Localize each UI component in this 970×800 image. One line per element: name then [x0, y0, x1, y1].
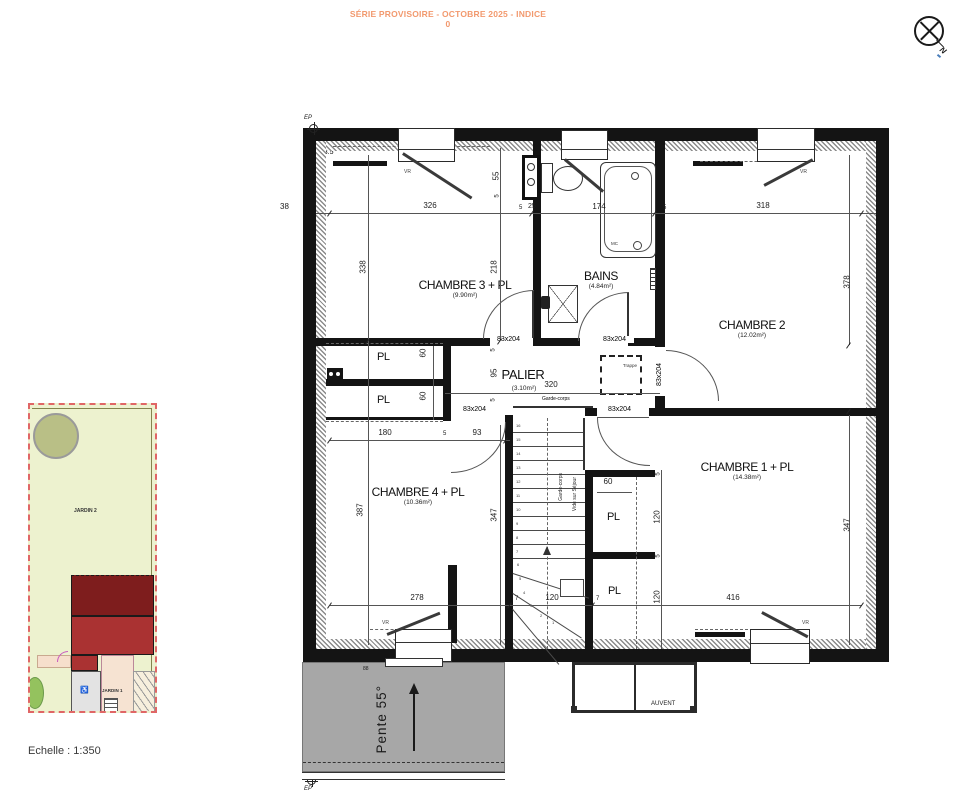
- electrical-box-icon: [327, 368, 343, 381]
- towel-radiator-icon: [650, 268, 656, 290]
- door-size-ch2: 83x204: [656, 363, 663, 386]
- dim-320: 320: [541, 381, 561, 389]
- door-arc-ch1: [597, 418, 650, 466]
- dimline-ch1-60: [597, 492, 632, 493]
- dim-55: 55: [492, 172, 500, 181]
- dim-7b: 7: [596, 596, 599, 602]
- dim-25: 25: [528, 203, 536, 210]
- dim-7a: 7: [515, 596, 518, 602]
- door-arc-bains: [578, 292, 629, 341]
- dimline-top: [316, 213, 876, 214]
- room-chambre4: CHAMBRE 4 + PL (10.36m²): [353, 486, 483, 507]
- wall-pl1-mid: [593, 552, 655, 559]
- dim-318: 318: [750, 202, 776, 210]
- room-area: (14.38m²): [682, 474, 812, 482]
- room-chambre3: CHAMBRE 3 + PL (9.90m²): [400, 279, 530, 300]
- dim-338: 338: [360, 260, 368, 273]
- dim-93: 93: [464, 429, 490, 437]
- tread-num: 16: [516, 424, 520, 428]
- door-leaf-ch1: [597, 417, 649, 418]
- wall-bains-ch2: [655, 141, 665, 347]
- dimline-palier: [330, 440, 510, 441]
- dim-120a: 120: [540, 594, 564, 602]
- trappe-label: Trappe: [623, 363, 637, 368]
- pente-label: Pente 55°: [375, 685, 389, 753]
- dim-387: 387: [357, 503, 365, 516]
- roof-slope: Pente 55° 88: [302, 662, 505, 772]
- tread-num: 11: [516, 494, 520, 498]
- dim-95: 95: [490, 369, 498, 378]
- tread-num: 12: [516, 480, 520, 484]
- dim-60a: 60: [419, 349, 427, 358]
- room-name: BAINS: [571, 270, 631, 283]
- window-ch2: [757, 128, 815, 162]
- tread-num: 9: [516, 522, 518, 526]
- driveway-hatch: [133, 671, 155, 713]
- dim-278: 278: [404, 594, 430, 602]
- auvent-post-right: [690, 706, 696, 713]
- room-area: (4.84m²): [571, 283, 631, 291]
- tread-num: 15: [516, 438, 520, 442]
- toilet-tank-icon: [541, 163, 553, 193]
- room-name: CHAMBRE 3 + PL: [400, 279, 530, 292]
- tread-num: 2: [540, 614, 542, 618]
- dim-5d: 5: [443, 431, 446, 437]
- dim-60b: 60: [419, 392, 427, 401]
- tread-num: 5: [519, 577, 521, 581]
- dimline-right-v1: [849, 155, 850, 345]
- pl-shelf-bottom: [326, 421, 443, 422]
- tread-num: 14: [516, 452, 520, 456]
- dimline-ch1col-v: [661, 470, 662, 649]
- dim-5b: 5: [663, 205, 666, 211]
- radiator-ch3: [333, 161, 387, 166]
- tread-num: 7: [516, 550, 518, 554]
- dim-347a: 347: [491, 508, 499, 521]
- garde-corps-stairs-label: Garde-corps: [559, 473, 564, 501]
- room-area: (9.90m²): [400, 292, 530, 300]
- room-bains: BAINS (4.84m²): [571, 270, 631, 291]
- dim-180: 180: [372, 429, 398, 437]
- door-size-ch4: 83x204: [462, 406, 494, 413]
- scale-label: Echelle : 1:350: [28, 745, 101, 757]
- hatch-right: [866, 141, 876, 649]
- dimline-mid-v2: [500, 425, 501, 645]
- window-ch4-outer-frame: [385, 658, 443, 667]
- dim-5g: 5: [656, 472, 662, 475]
- room-chambre1: CHAMBRE 1 + PL (14.38m²): [682, 461, 812, 482]
- vr-ch3: VR: [404, 169, 411, 175]
- dim-120b: 120: [654, 510, 662, 523]
- pl-left-2: PL: [377, 395, 390, 406]
- pl-shelf-top: [326, 343, 443, 344]
- dim-416: 416: [720, 594, 746, 602]
- door-size-bains: 83x204: [602, 336, 634, 343]
- wall-plcol-left: [585, 470, 593, 649]
- radiator-ch1: [695, 632, 745, 637]
- room-area: (10.36m²): [353, 499, 483, 507]
- wall-pl-right: [443, 346, 451, 421]
- dim-5f: 5: [491, 398, 497, 401]
- wall-pl-mid: [326, 379, 443, 386]
- auvent: AUVENT: [572, 662, 697, 713]
- guardrail-line: [583, 418, 585, 470]
- wall-stairs-left: [505, 415, 513, 649]
- dim-326: 326: [417, 202, 443, 210]
- jardin2-label: JARDIN 2: [74, 508, 97, 514]
- room-chambre2: CHAMBRE 2 (12.02m²): [687, 319, 817, 340]
- door-arc-ch2: [666, 350, 719, 401]
- dimline-bottom: [330, 605, 862, 606]
- pl-right-2: PL: [608, 586, 621, 597]
- dim-5a: 5: [519, 205, 522, 211]
- room-name: CHAMBRE 1 + PL: [682, 461, 812, 474]
- vr-ch1: VR: [802, 620, 809, 626]
- window-bains: [561, 130, 608, 160]
- room-name: CHAMBRE 2: [687, 319, 817, 332]
- dim-120c: 120: [654, 590, 662, 603]
- dim-88: 88: [363, 667, 369, 672]
- hatch-left: [316, 141, 326, 649]
- wall-ch1-top-b: [649, 408, 876, 416]
- vr-ch4: VR: [382, 620, 389, 626]
- site-plan: JARDIN 2 ♿ JARDIN 1: [28, 403, 157, 713]
- dim-5c: 5: [495, 194, 501, 197]
- dimline-320: [445, 393, 660, 394]
- auvent-label: AUVENT: [651, 701, 675, 707]
- roof-dark: [71, 575, 154, 616]
- pl1-front-dashed: [636, 477, 637, 649]
- palier-guardrail: [513, 406, 593, 408]
- washbasin-icon: [541, 296, 550, 309]
- duct-niche: [522, 155, 540, 200]
- vr-ch2: VR: [800, 169, 807, 175]
- floor-plan: MC Trappe 83x204 83x204 83x204 83x204 83…: [303, 128, 889, 662]
- pl-right-1: PL: [607, 512, 620, 523]
- dim-38: 38: [280, 203, 289, 211]
- tread-num: 1: [552, 621, 554, 625]
- roof-edge-strip: [302, 772, 505, 780]
- tread-num: 4: [523, 591, 525, 595]
- dimline-pl60-v: [433, 346, 434, 420]
- wall-palier-top-a: [316, 338, 490, 346]
- roof-red-low: [71, 655, 98, 671]
- dim-174: 174: [586, 203, 612, 211]
- tread-num: 8: [516, 536, 518, 540]
- tub-mc-label: MC: [611, 241, 618, 246]
- pl-left-1: PL: [377, 352, 390, 363]
- vide-sur-sejour-label: Vide sur Séjour: [573, 477, 578, 511]
- tread-num: 13: [516, 466, 520, 470]
- stair-up-arrow: [543, 546, 551, 555]
- trappe-hatch-access: Trappe: [600, 355, 642, 395]
- auvent-post-left: [571, 706, 577, 713]
- ep-marker-top: [309, 124, 318, 133]
- tread-num: 10: [516, 508, 520, 512]
- dim-378: 378: [844, 275, 852, 288]
- stair-walkline: [547, 418, 548, 649]
- tread-num: 6: [517, 563, 519, 567]
- dim-60c: 60: [600, 478, 616, 486]
- room-name: CHAMBRE 4 + PL: [353, 486, 483, 499]
- sheet-title: SÉRIE PROVISOIRE - OCTOBRE 2025 - INDICE…: [348, 9, 548, 29]
- garde-corps-palier-label: Garde-corps: [542, 396, 570, 402]
- dim-218: 218: [491, 260, 499, 273]
- drawing-sheet: SÉRIE PROVISOIRE - OCTOBRE 2025 - INDICE…: [0, 0, 970, 800]
- jardin1-label: JARDIN 1: [102, 688, 123, 693]
- wall-palier-top-b: [533, 338, 580, 346]
- dimline-left-v: [368, 155, 369, 645]
- room-area: (12.02m²): [687, 332, 817, 340]
- accessible-icon: ♿: [80, 686, 89, 694]
- mini-stairs: [104, 698, 118, 713]
- tree-icon: [33, 413, 79, 459]
- door-size-ch1: 83x204: [607, 406, 639, 413]
- dim-5e: 5: [491, 348, 497, 351]
- ep-label-top: EP: [304, 115, 312, 121]
- wall-pl1-top: [593, 470, 655, 477]
- roof-red: [71, 616, 154, 655]
- ep-label-bottom: EP: [304, 786, 312, 792]
- wall-ch1-top-a: [585, 408, 597, 416]
- dim-347b: 347: [844, 518, 852, 531]
- dim-5h: 5: [656, 554, 662, 557]
